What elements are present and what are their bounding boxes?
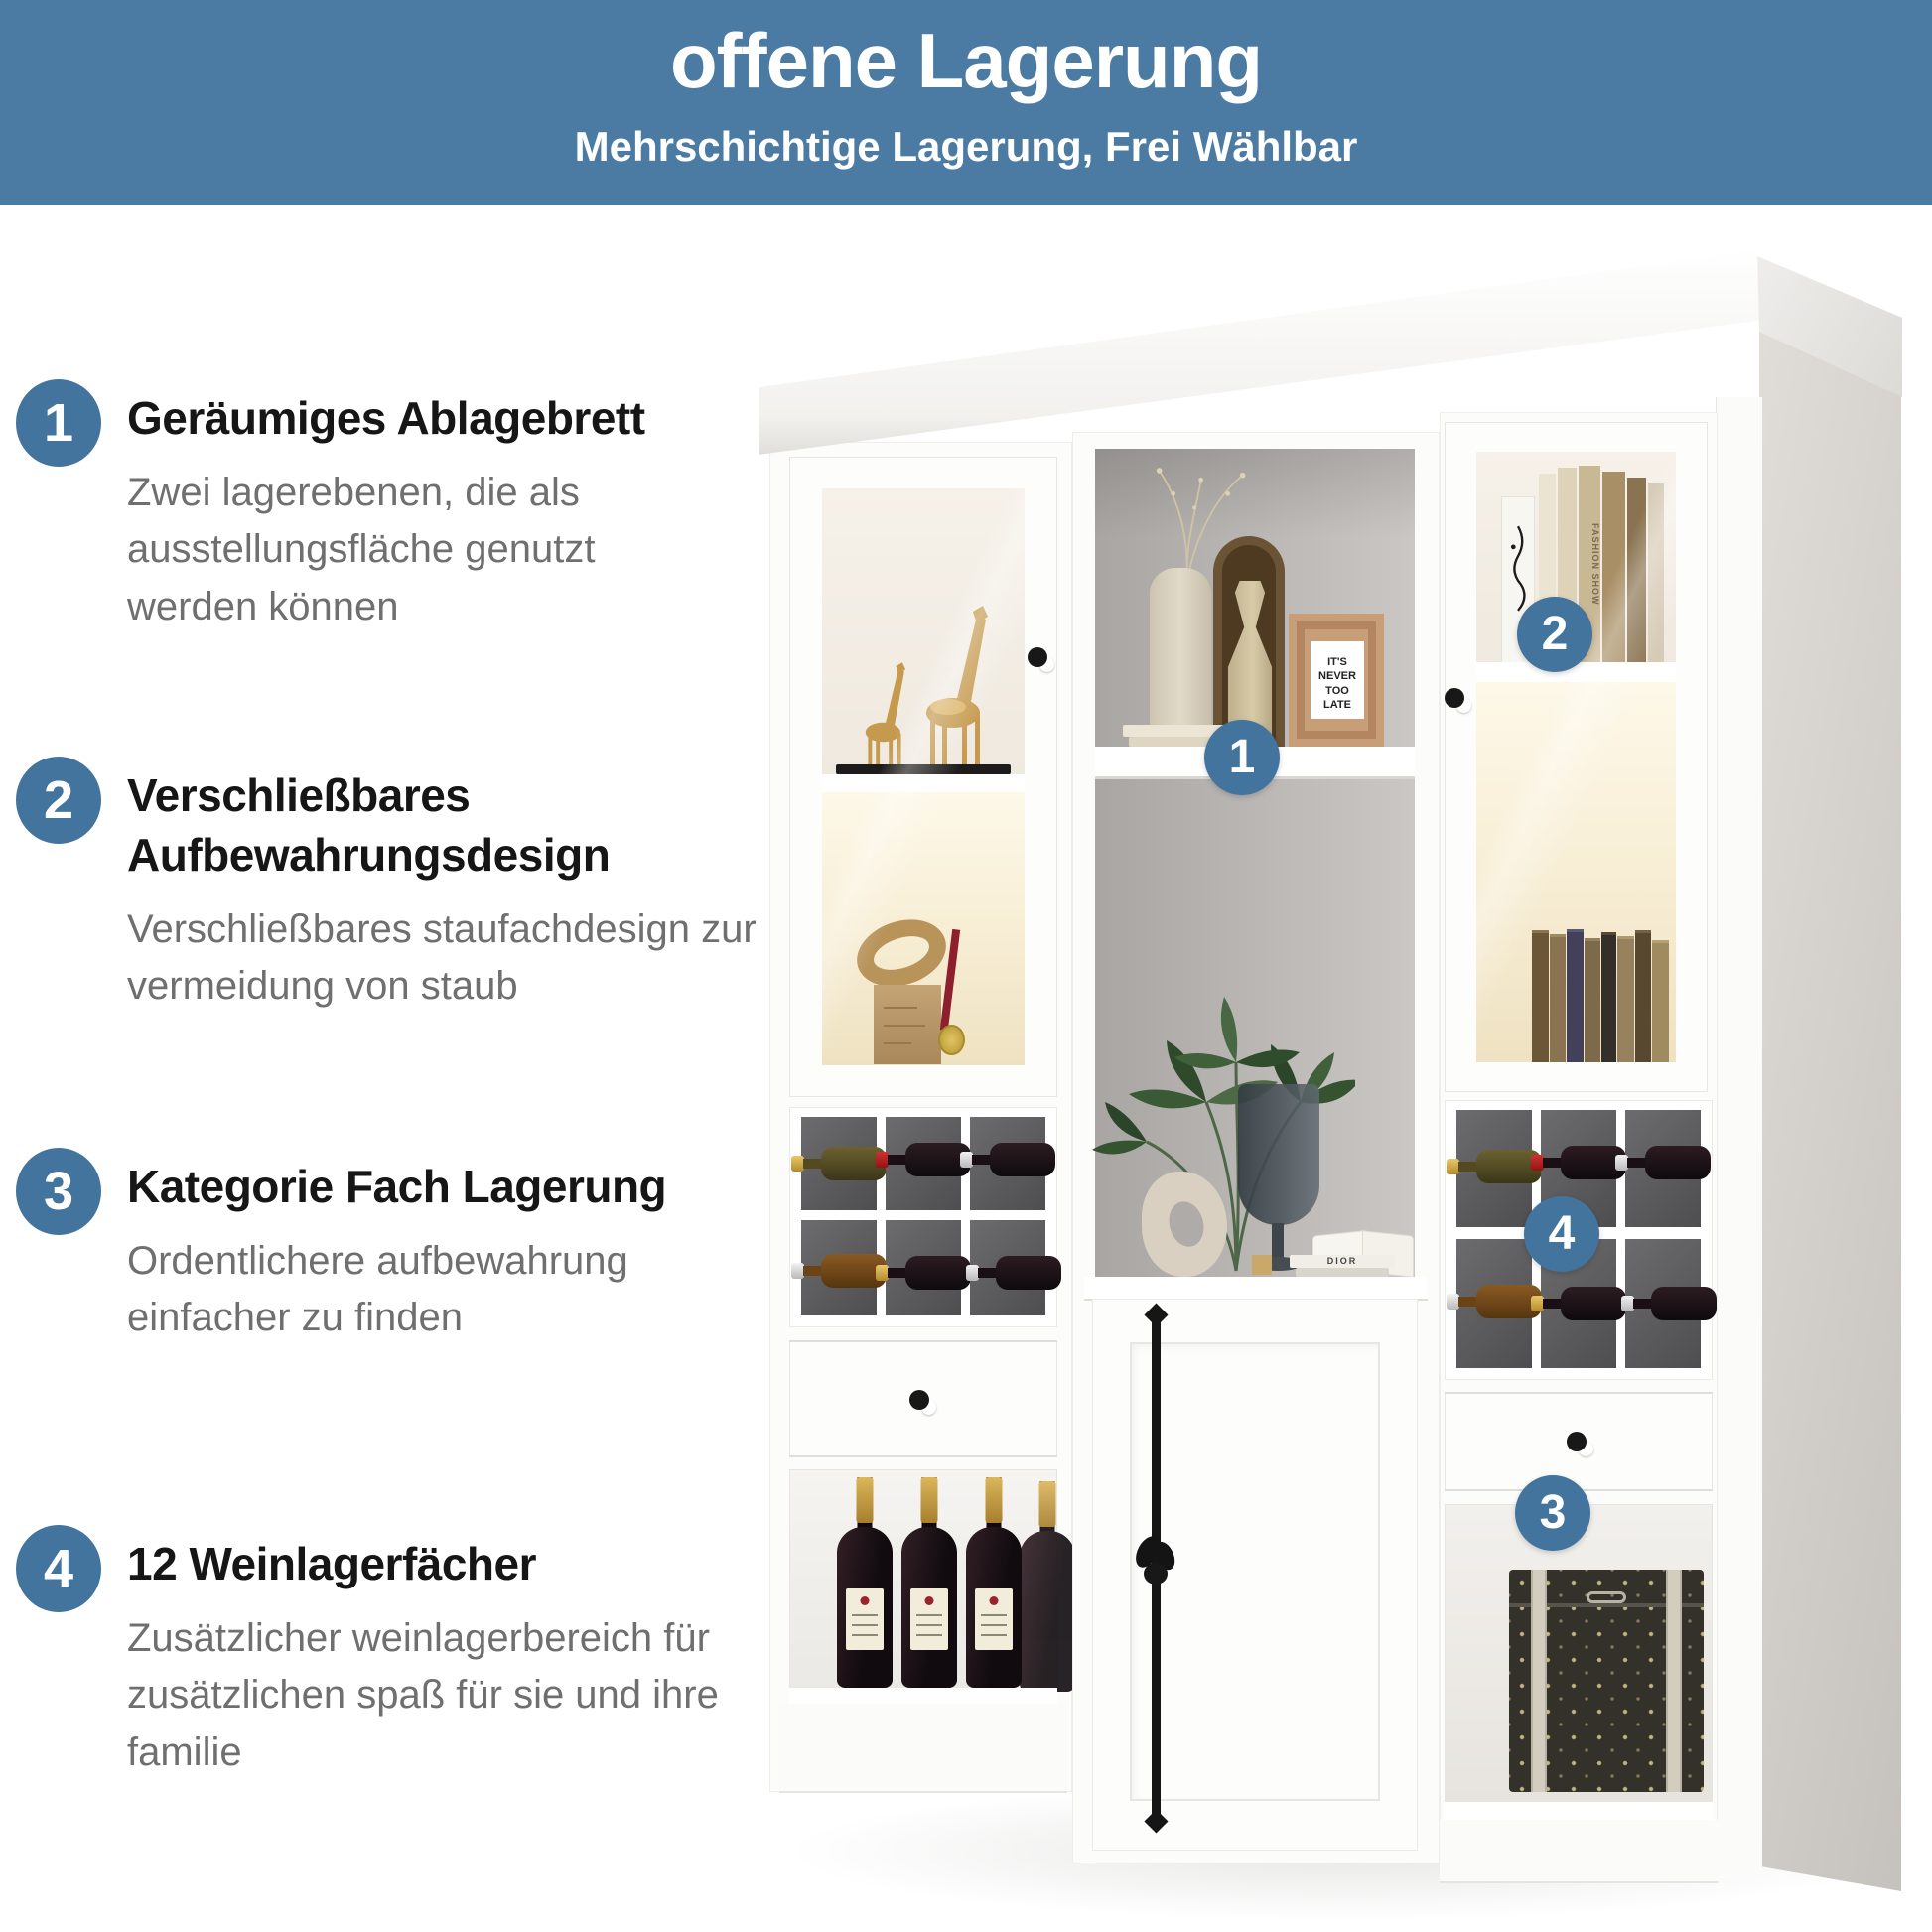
photo-frame: IT'S NEVER TOO LATE bbox=[1289, 614, 1384, 747]
drawer-right bbox=[1445, 1392, 1713, 1491]
wine-bottle bbox=[1531, 1146, 1626, 1179]
glass-vase bbox=[1238, 1084, 1319, 1225]
donut-sculpture bbox=[1142, 1172, 1227, 1277]
wine-bottle bbox=[1621, 1287, 1717, 1320]
standing-wine-bottle bbox=[1020, 1481, 1075, 1692]
wine-bottle bbox=[1615, 1146, 1711, 1179]
wine-bottle bbox=[960, 1143, 1055, 1176]
wine-bottle bbox=[966, 1256, 1061, 1290]
wine-bottle bbox=[876, 1256, 971, 1290]
lower-cabinet-door bbox=[1092, 1299, 1418, 1851]
trunk-strap bbox=[1666, 1570, 1682, 1792]
handle-finial-bottom bbox=[1144, 1809, 1168, 1833]
bottom-shelf-right bbox=[1445, 1504, 1713, 1802]
wood-cube bbox=[1252, 1255, 1272, 1275]
wine-bottle bbox=[791, 1147, 887, 1180]
cabinet-photo: IT'S NEVER TOO LATE bbox=[0, 0, 1932, 1932]
left-glass-door bbox=[789, 457, 1057, 1097]
left-door-knob bbox=[1028, 647, 1047, 667]
wine-cubby bbox=[801, 1117, 877, 1210]
wine-rack-left bbox=[789, 1107, 1057, 1327]
book-stack bbox=[1296, 1268, 1389, 1277]
wine-cubby bbox=[1456, 1110, 1532, 1227]
wine-bottle bbox=[1447, 1150, 1542, 1183]
frame-quote: IT'S NEVER TOO LATE bbox=[1311, 641, 1364, 719]
wine-cubby bbox=[970, 1117, 1045, 1210]
drawer-left-knob bbox=[909, 1390, 929, 1410]
bottom-shelf-left bbox=[789, 1469, 1057, 1690]
right-shelf-board bbox=[1445, 1802, 1713, 1822]
product-infographic: offene Lagerung Mehrschichtige Lagerung,… bbox=[0, 0, 1932, 1932]
callout-4-wine-rack: 4 bbox=[1524, 1196, 1599, 1272]
wine-cubby bbox=[1625, 1239, 1701, 1368]
left-plinth bbox=[779, 1704, 1067, 1793]
callout-2-glass-door: 2 bbox=[1517, 597, 1592, 672]
right-door-reflection bbox=[1476, 452, 1676, 1062]
handle-ornament bbox=[1144, 1563, 1168, 1585]
standing-wine-bottle bbox=[837, 1477, 893, 1688]
left-door-reflection bbox=[822, 488, 1025, 1064]
cylinder-vase bbox=[1150, 568, 1211, 747]
drawer-left bbox=[789, 1340, 1057, 1457]
right-door-knob bbox=[1445, 688, 1464, 708]
right-plinth bbox=[1440, 1820, 1718, 1883]
monogram-trunk bbox=[1509, 1570, 1704, 1792]
wine-bottle bbox=[876, 1143, 971, 1176]
center-counter bbox=[1084, 1277, 1428, 1301]
callout-3-drawer: 3 bbox=[1515, 1475, 1590, 1551]
wine-bottle bbox=[791, 1254, 887, 1288]
trunk-handle bbox=[1587, 1591, 1626, 1603]
center-display: IT'S NEVER TOO LATE bbox=[1095, 449, 1415, 1279]
wine-bottle bbox=[1531, 1287, 1626, 1320]
side-panel bbox=[1759, 328, 1901, 1891]
glass-vase-stem bbox=[1272, 1223, 1284, 1259]
dior-book: DIOR bbox=[1290, 1255, 1395, 1268]
standing-wine-bottle bbox=[966, 1477, 1022, 1688]
wine-cubby bbox=[1625, 1110, 1701, 1227]
wine-cubby bbox=[886, 1220, 961, 1315]
wine-bottle bbox=[1447, 1285, 1542, 1318]
wine-cubby bbox=[886, 1117, 961, 1210]
standing-wine-bottle bbox=[901, 1477, 957, 1688]
callout-1-shelf: 1 bbox=[1204, 720, 1280, 795]
wine-cubby bbox=[970, 1220, 1045, 1315]
right-stile bbox=[1716, 397, 1762, 1878]
wine-cubby bbox=[801, 1220, 877, 1315]
handle-finial-top bbox=[1144, 1303, 1168, 1326]
trunk-strap bbox=[1531, 1570, 1547, 1792]
right-glass-door: FASHION SHOW bbox=[1445, 422, 1708, 1092]
drawer-right-knob bbox=[1567, 1432, 1587, 1451]
wine-cubby bbox=[1456, 1239, 1532, 1368]
